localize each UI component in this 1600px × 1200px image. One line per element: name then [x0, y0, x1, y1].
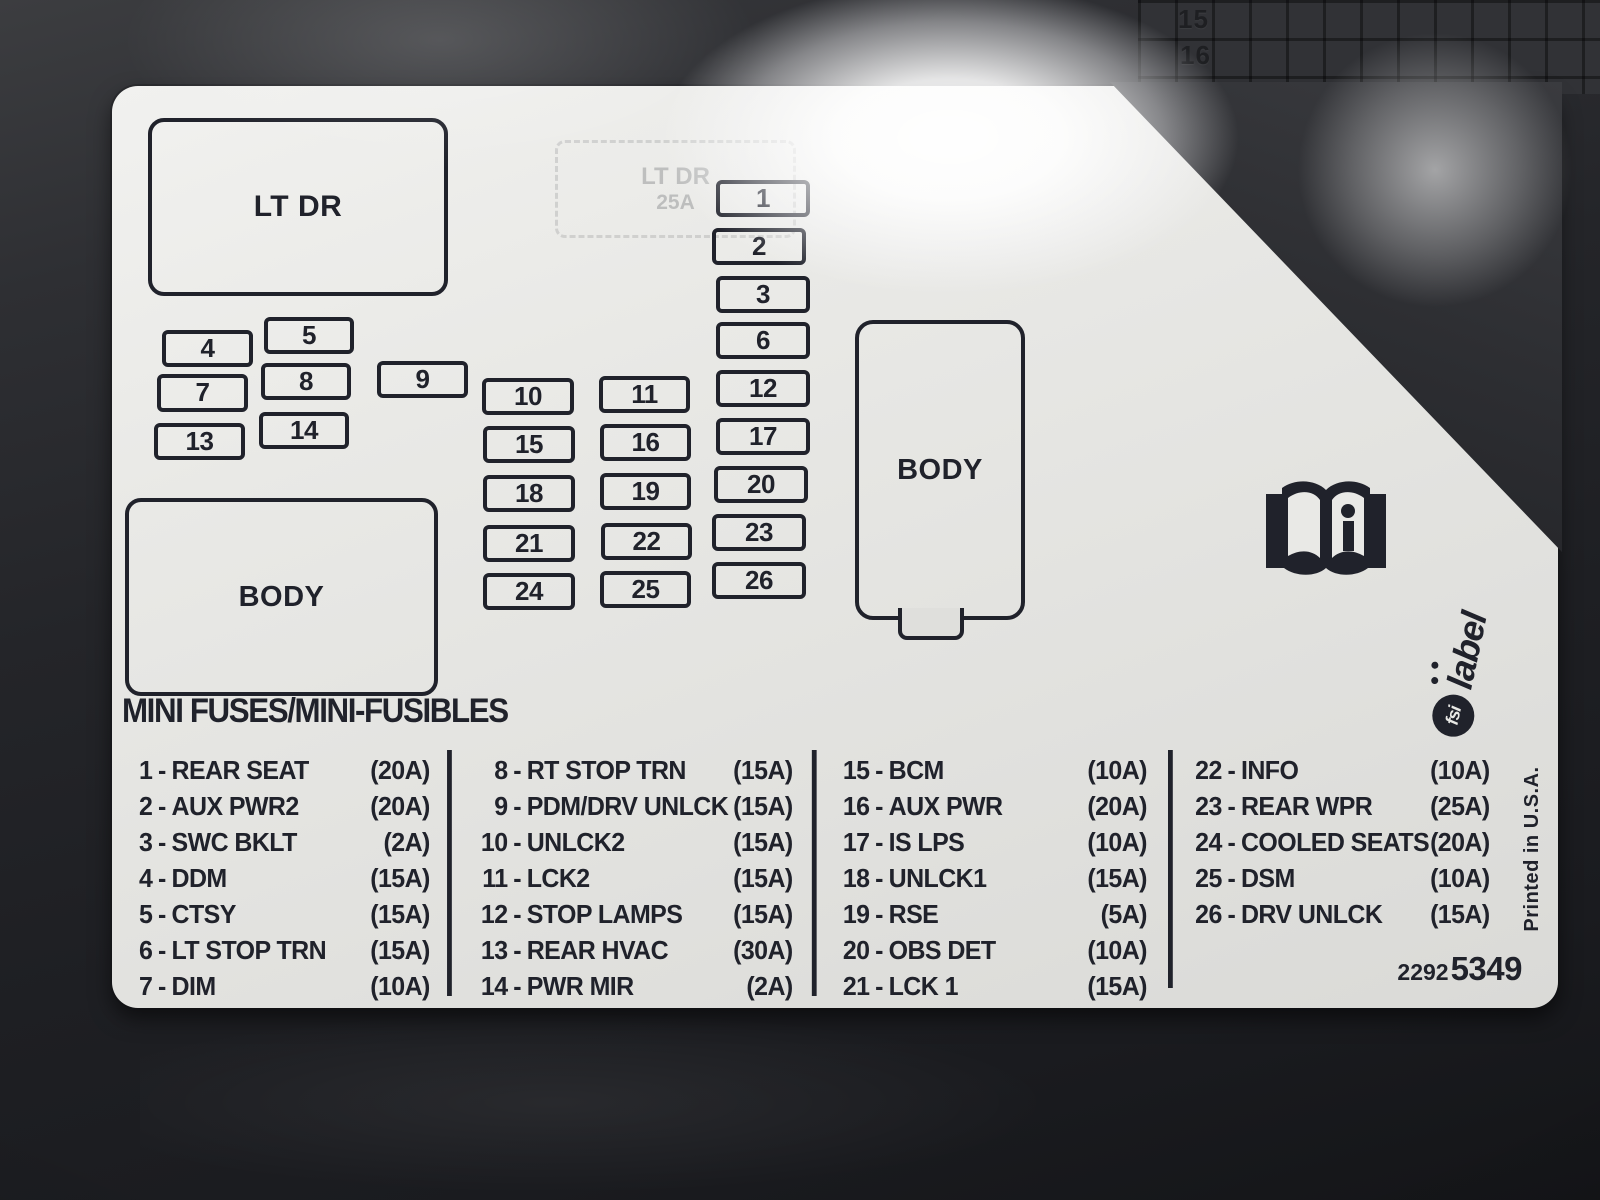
legend-entry-19: 19-RSE(5A) [835, 896, 1147, 932]
brand-word: label [1442, 609, 1493, 692]
legend-entry-20: 20-OBS DET(10A) [835, 932, 1147, 968]
legend-amp: (20A) [1430, 827, 1490, 858]
legend-amp: (15A) [733, 899, 793, 930]
legend-name: RT STOP TRN [527, 755, 733, 786]
part-number: 2292 5349 [1350, 950, 1522, 988]
legend-dash: - [869, 971, 888, 1002]
legend-name: REAR SEAT [172, 755, 371, 786]
legend-num: 10 [473, 827, 508, 858]
legend-dash: - [152, 971, 171, 1002]
legend-amp: (2A) [384, 827, 430, 858]
legend-dash: - [152, 827, 171, 858]
legend-name: AUX PWR2 [172, 791, 371, 822]
molded-grid-number: 16 [1180, 40, 1211, 71]
legend-amp: (10A) [370, 971, 430, 1002]
brand-circle: fsi [1428, 691, 1478, 741]
legend-dash: - [869, 899, 888, 930]
legend-entry-2: 2-AUX PWR2(20A) [118, 788, 430, 824]
legend-entry-12: 12-STOP LAMPS(15A) [473, 896, 793, 932]
legend-divider [812, 750, 817, 996]
legend-num: 13 [473, 935, 508, 966]
legend-name: UNLCK1 [889, 863, 1088, 894]
legend-name: SWC BKLT [172, 827, 384, 858]
legend-amp: (20A) [370, 755, 430, 786]
legend-amp: (30A) [733, 935, 793, 966]
legend-num: 21 [835, 971, 870, 1002]
legend-num: 24 [1187, 827, 1222, 858]
legend-num: 8 [473, 755, 508, 786]
legend-amp: (20A) [1087, 791, 1147, 822]
legend-amp: (15A) [370, 935, 430, 966]
legend-name: PWR MIR [527, 971, 747, 1002]
legend-name: PDM/DRV UNLCK [527, 791, 733, 822]
legend-amp: (15A) [733, 827, 793, 858]
legend-entry-21: 21-LCK 1(15A) [835, 968, 1147, 1004]
fuse-box-lid-photo: 15 16 LT DR BODY BODY LT DR 25A 12345678… [0, 0, 1600, 1200]
legend-num: 14 [473, 971, 508, 1002]
legend-entry-23: 23-REAR WPR(25A) [1187, 788, 1489, 824]
legend-num: 6 [118, 935, 153, 966]
legend-name: DSM [1241, 863, 1430, 894]
legend-entry-16: 16-AUX PWR(20A) [835, 788, 1147, 824]
legend-num: 20 [835, 935, 870, 966]
legend-name: RSE [889, 899, 1101, 930]
legend-dash: - [869, 827, 888, 858]
legend-dash: - [869, 863, 888, 894]
legend-amp: (20A) [370, 791, 430, 822]
legend-dash: - [508, 863, 527, 894]
legend-entry-11: 11-LCK2(15A) [473, 860, 793, 896]
legend-amp: (10A) [1087, 827, 1147, 858]
legend-entry-7: 7-DIM(10A) [118, 968, 430, 1004]
legend-dash: - [508, 935, 527, 966]
legend-name: AUX PWR [889, 791, 1088, 822]
legend-entry-1: 1-REAR SEAT(20A) [118, 752, 430, 788]
legend-amp: (15A) [370, 899, 430, 930]
legend-name: LCK 1 [889, 971, 1088, 1002]
legend-entry-18: 18-UNLCK1(15A) [835, 860, 1147, 896]
legend-num: 16 [835, 791, 870, 822]
legend-num: 23 [1187, 791, 1222, 822]
legend-amp: (15A) [1087, 863, 1147, 894]
legend-entry-17: 17-IS LPS(10A) [835, 824, 1147, 860]
legend-num: 19 [835, 899, 870, 930]
legend-amp: (15A) [733, 863, 793, 894]
legend-dash: - [152, 899, 171, 930]
legend-amp: (10A) [1087, 755, 1147, 786]
legend-entry-15: 15-BCM(10A) [835, 752, 1147, 788]
legend-dash: - [1222, 863, 1241, 894]
legend-column-3: 15-BCM(10A)16-AUX PWR(20A)17-IS LPS(10A)… [835, 752, 1147, 1004]
legend-entry-3: 3-SWC BKLT(2A) [118, 824, 430, 860]
legend-dash: - [152, 755, 171, 786]
legend-name: CTSY [172, 899, 371, 930]
legend-entry-4: 4-DDM(15A) [118, 860, 430, 896]
legend-dash: - [869, 755, 888, 786]
legend-column-4: 22-INFO(10A)23-REAR WPR(25A)24-COOLED SE… [1187, 752, 1489, 932]
legend-name: BCM [889, 755, 1088, 786]
owner-manual-book-icon [1262, 478, 1390, 578]
legend-name: STOP LAMPS [527, 899, 733, 930]
part-number-main: 5349 [1451, 950, 1522, 988]
legend-column-2: 8-RT STOP TRN(15A)9-PDM/DRV UNLCK(15A)10… [473, 752, 793, 1004]
legend-name: REAR WPR [1241, 791, 1430, 822]
legend-num: 26 [1187, 899, 1222, 930]
legend-dash: - [508, 899, 527, 930]
legend-num: 12 [473, 899, 508, 930]
legend-amp: (25A) [1430, 791, 1490, 822]
legend-dash: - [1222, 827, 1241, 858]
legend-amp: (5A) [1101, 899, 1147, 930]
legend-name: COOLED SEATS [1241, 827, 1430, 858]
legend-name: OBS DET [889, 935, 1088, 966]
legend-name: UNLCK2 [527, 827, 733, 858]
legend-amp: (10A) [1430, 863, 1490, 894]
legend-num: 18 [835, 863, 870, 894]
legend-entry-13: 13-REAR HVAC(30A) [473, 932, 793, 968]
legend-amp: (15A) [733, 791, 793, 822]
legend-num: 11 [473, 863, 508, 894]
printed-in-usa-text: Printed in U.S.A. [1521, 759, 1547, 939]
legend-num: 25 [1187, 863, 1222, 894]
legend-num: 4 [118, 863, 153, 894]
legend-entry-10: 10-UNLCK2(15A) [473, 824, 793, 860]
legend-name: DDM [172, 863, 371, 894]
legend-amp: (10A) [1087, 935, 1147, 966]
legend-dash: - [508, 827, 527, 858]
legend-entry-24: 24-COOLED SEATS(20A) [1187, 824, 1489, 860]
legend-dash: - [152, 791, 171, 822]
legend-name: LT STOP TRN [172, 935, 371, 966]
legend-dash: - [152, 863, 171, 894]
legend-dash: - [152, 935, 171, 966]
legend-dash: - [869, 935, 888, 966]
legend-num: 3 [118, 827, 153, 858]
legend-num: 2 [118, 791, 153, 822]
legend-dash: - [1222, 899, 1241, 930]
legend-entry-22: 22-INFO(10A) [1187, 752, 1489, 788]
legend-amp: (2A) [746, 971, 792, 1002]
legend-num: 9 [473, 791, 508, 822]
legend-amp: (15A) [1087, 971, 1147, 1002]
legend-amp: (15A) [370, 863, 430, 894]
legend-num: 22 [1187, 755, 1222, 786]
legend-divider [447, 750, 452, 996]
legend-entry-9: 9-PDM/DRV UNLCK(15A) [473, 788, 793, 824]
legend-amp: (15A) [733, 755, 793, 786]
legend-num: 1 [118, 755, 153, 786]
legend-dash: - [869, 791, 888, 822]
legend-divider [1168, 750, 1173, 988]
legend-entry-26: 26-DRV UNLCK(15A) [1187, 896, 1489, 932]
legend-entry-5: 5-CTSY(15A) [118, 896, 430, 932]
legend-name: LCK2 [527, 863, 733, 894]
legend-entry-14: 14-PWR MIR(2A) [473, 968, 793, 1004]
legend-num: 17 [835, 827, 870, 858]
legend-name: INFO [1241, 755, 1430, 786]
glare-highlight [140, 1010, 1060, 1195]
legend-entry-25: 25-DSM(10A) [1187, 860, 1489, 896]
legend-dash: - [508, 791, 527, 822]
legend-num: 5 [118, 899, 153, 930]
legend-name: IS LPS [889, 827, 1088, 858]
legend-name: DRV UNLCK [1241, 899, 1430, 930]
part-number-prefix: 2292 [1397, 959, 1448, 986]
legend-num: 15 [835, 755, 870, 786]
legend-amp: (15A) [1430, 899, 1490, 930]
legend-amp: (10A) [1430, 755, 1490, 786]
legend-dash: - [508, 755, 527, 786]
legend-dash: - [1222, 791, 1241, 822]
legend-name: DIM [172, 971, 371, 1002]
legend-dash: - [508, 971, 527, 1002]
legend-name: REAR HVAC [527, 935, 733, 966]
legend-entry-6: 6-LT STOP TRN(15A) [118, 932, 430, 968]
molded-grid-number: 15 [1178, 4, 1209, 35]
legend-dash: - [1222, 755, 1241, 786]
legend-num: 7 [118, 971, 153, 1002]
legend-column-1: 1-REAR SEAT(20A)2-AUX PWR2(20A)3-SWC BKL… [118, 752, 430, 1004]
legend-entry-8: 8-RT STOP TRN(15A) [473, 752, 793, 788]
